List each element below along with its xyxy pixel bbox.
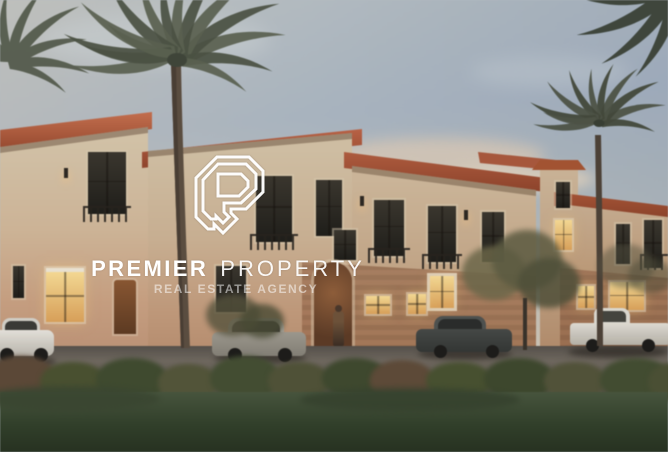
watermark-brand-name: PREMIER PROPERTY — [60, 256, 396, 282]
brand-word-premier: PREMIER — [91, 256, 208, 281]
logo-bowl-outline — [218, 174, 248, 196]
premier-property-logo-icon — [187, 155, 267, 243]
property-listing-photo: PREMIER PROPERTY REAL ESTATE AGENCY — [0, 0, 668, 452]
watermark-overlay: PREMIER PROPERTY REAL ESTATE AGENCY — [0, 0, 668, 452]
brand-word-property: PROPERTY — [220, 256, 365, 281]
watermark-tagline: REAL ESTATE AGENCY — [68, 281, 404, 297]
